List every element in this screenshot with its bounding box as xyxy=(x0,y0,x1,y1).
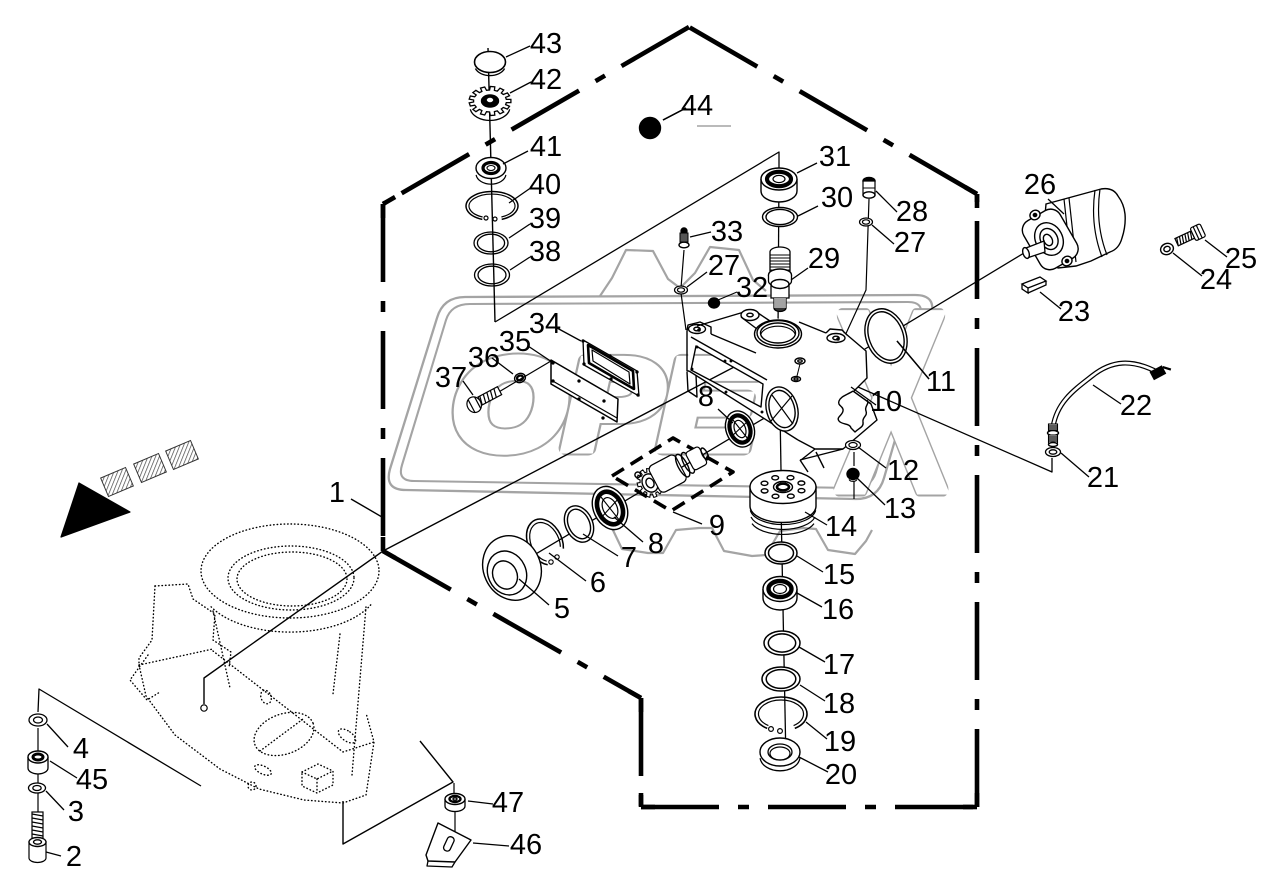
svg-text:8: 8 xyxy=(698,381,714,413)
svg-text:9: 9 xyxy=(709,510,725,542)
svg-text:10: 10 xyxy=(870,386,902,418)
svg-text:16: 16 xyxy=(822,594,854,626)
svg-text:32: 32 xyxy=(736,272,768,304)
svg-text:22: 22 xyxy=(1120,390,1152,422)
svg-text:14: 14 xyxy=(825,511,857,543)
svg-text:30: 30 xyxy=(821,182,853,214)
svg-text:45: 45 xyxy=(76,764,108,796)
svg-text:7: 7 xyxy=(621,542,637,574)
svg-text:33: 33 xyxy=(711,216,743,248)
svg-text:42: 42 xyxy=(530,64,562,96)
svg-text:31: 31 xyxy=(819,141,851,173)
svg-text:1: 1 xyxy=(329,477,345,509)
svg-text:2: 2 xyxy=(66,841,82,873)
svg-text:18: 18 xyxy=(823,688,855,720)
svg-text:24: 24 xyxy=(1200,264,1232,296)
svg-text:19: 19 xyxy=(824,726,856,758)
svg-text:37: 37 xyxy=(435,362,467,394)
svg-text:15: 15 xyxy=(823,559,855,591)
svg-text:35: 35 xyxy=(499,326,531,358)
svg-text:28: 28 xyxy=(896,196,928,228)
svg-text:23: 23 xyxy=(1058,296,1090,328)
svg-text:21: 21 xyxy=(1087,462,1119,494)
svg-text:12: 12 xyxy=(887,455,919,487)
svg-text:40: 40 xyxy=(529,169,561,201)
svg-text:39: 39 xyxy=(529,203,561,235)
svg-text:38: 38 xyxy=(529,236,561,268)
svg-text:29: 29 xyxy=(808,243,840,275)
svg-text:26: 26 xyxy=(1024,169,1056,201)
svg-text:8: 8 xyxy=(648,528,664,560)
svg-text:34: 34 xyxy=(529,308,561,340)
svg-text:27: 27 xyxy=(894,227,926,259)
svg-text:11: 11 xyxy=(926,366,956,398)
svg-text:47: 47 xyxy=(492,787,524,819)
svg-text:6: 6 xyxy=(590,567,606,599)
svg-text:5: 5 xyxy=(554,593,570,625)
svg-text:3: 3 xyxy=(68,796,84,828)
svg-text:41: 41 xyxy=(530,131,562,163)
svg-text:44: 44 xyxy=(681,90,713,122)
svg-text:46: 46 xyxy=(510,829,542,861)
svg-text:20: 20 xyxy=(825,759,857,791)
svg-text:17: 17 xyxy=(823,649,855,681)
svg-text:4: 4 xyxy=(73,733,89,765)
svg-text:36: 36 xyxy=(468,342,500,374)
svg-text:43: 43 xyxy=(530,28,562,60)
svg-text:13: 13 xyxy=(884,493,916,525)
